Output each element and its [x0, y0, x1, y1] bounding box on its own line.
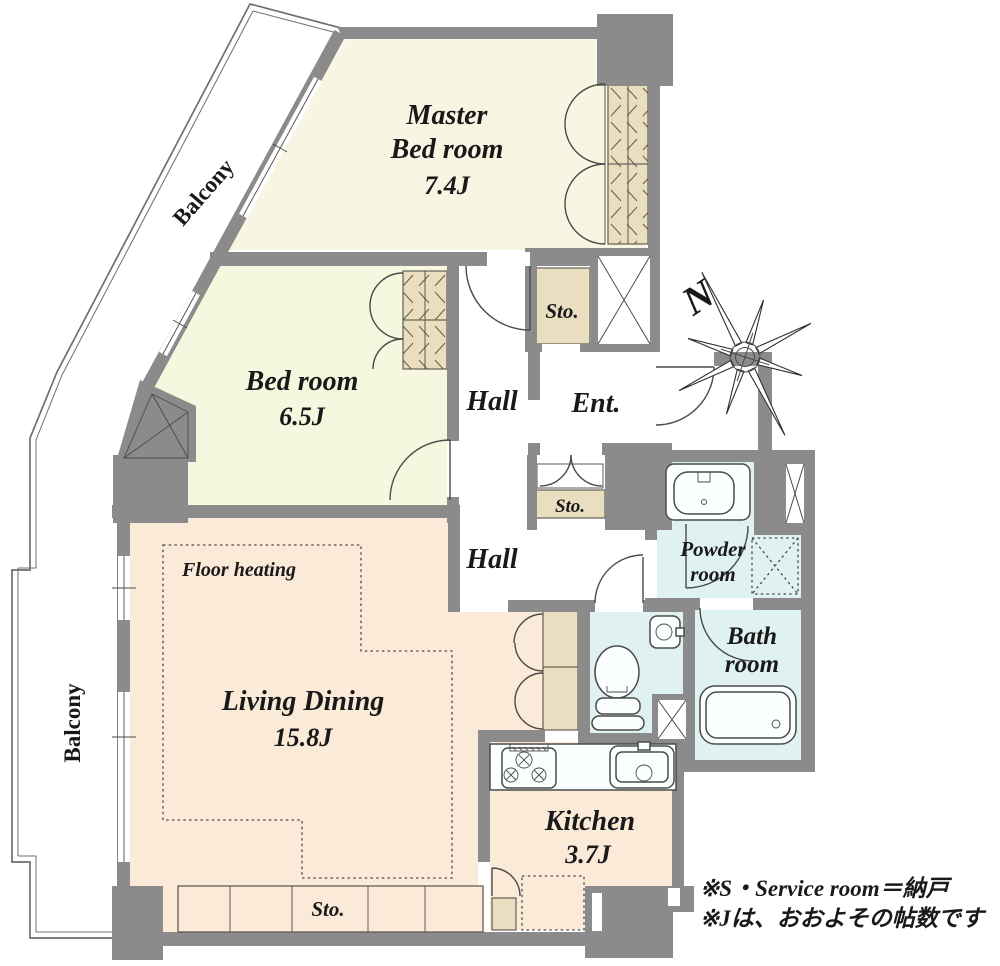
balcony-left-label: Balcony — [60, 683, 85, 763]
bath-room-label-1: Bath — [726, 623, 777, 650]
compass-n-label: N — [673, 269, 724, 324]
master-bedroom-label-1: Master — [406, 100, 489, 131]
storage-bottom-label: Sto. — [311, 897, 344, 921]
master-bedroom-size: 7.4J — [424, 171, 471, 200]
living-dining-label: Living Dining — [221, 686, 385, 717]
kitchen-size: 3.7J — [564, 840, 612, 869]
powder-room-label-1: Powder — [679, 537, 746, 561]
master-closet — [608, 84, 648, 244]
bedroom-closet — [403, 271, 447, 369]
floor-heating-label: Floor heating — [181, 559, 296, 581]
kitchen-label: Kitchen — [544, 806, 635, 837]
storage-middle-label: Sto. — [555, 496, 585, 517]
pipe-space-top — [598, 256, 650, 344]
storage-middle-doors — [540, 455, 602, 486]
hall-lower-label: Hall — [465, 544, 518, 575]
kitchen-sink-icon — [610, 742, 674, 788]
bath-room-label-2: room — [725, 651, 779, 678]
hall-upper-label: Hall — [465, 386, 518, 417]
powder-room-label-2: room — [690, 562, 736, 586]
floor-plan: Balcony Balcony Master Bed room 7.4J Bed… — [0, 0, 1000, 966]
powder-sink-icon — [666, 464, 750, 520]
stove-icon — [502, 744, 556, 788]
bathtub-icon — [700, 686, 796, 744]
storage-upper-label: Sto. — [545, 299, 578, 323]
bedroom-label: Bed room — [245, 366, 359, 397]
wc-corner-sink-icon — [650, 616, 684, 648]
pipe-space-powder — [786, 464, 804, 523]
kitchen-cabinet — [492, 898, 516, 930]
entrance-label: Ent. — [570, 388, 620, 419]
note-line-2: ※Jは、おおよその帖数です — [700, 906, 987, 931]
wall-cabinet-column — [543, 607, 578, 730]
bedroom-size: 6.5J — [279, 402, 326, 431]
pipe-space-wc — [652, 694, 692, 745]
note-line-1: ※S・Service room＝納戸 — [700, 876, 953, 901]
living-dining-size: 15.8J — [274, 723, 334, 752]
master-bedroom-label-2: Bed room — [390, 134, 504, 165]
